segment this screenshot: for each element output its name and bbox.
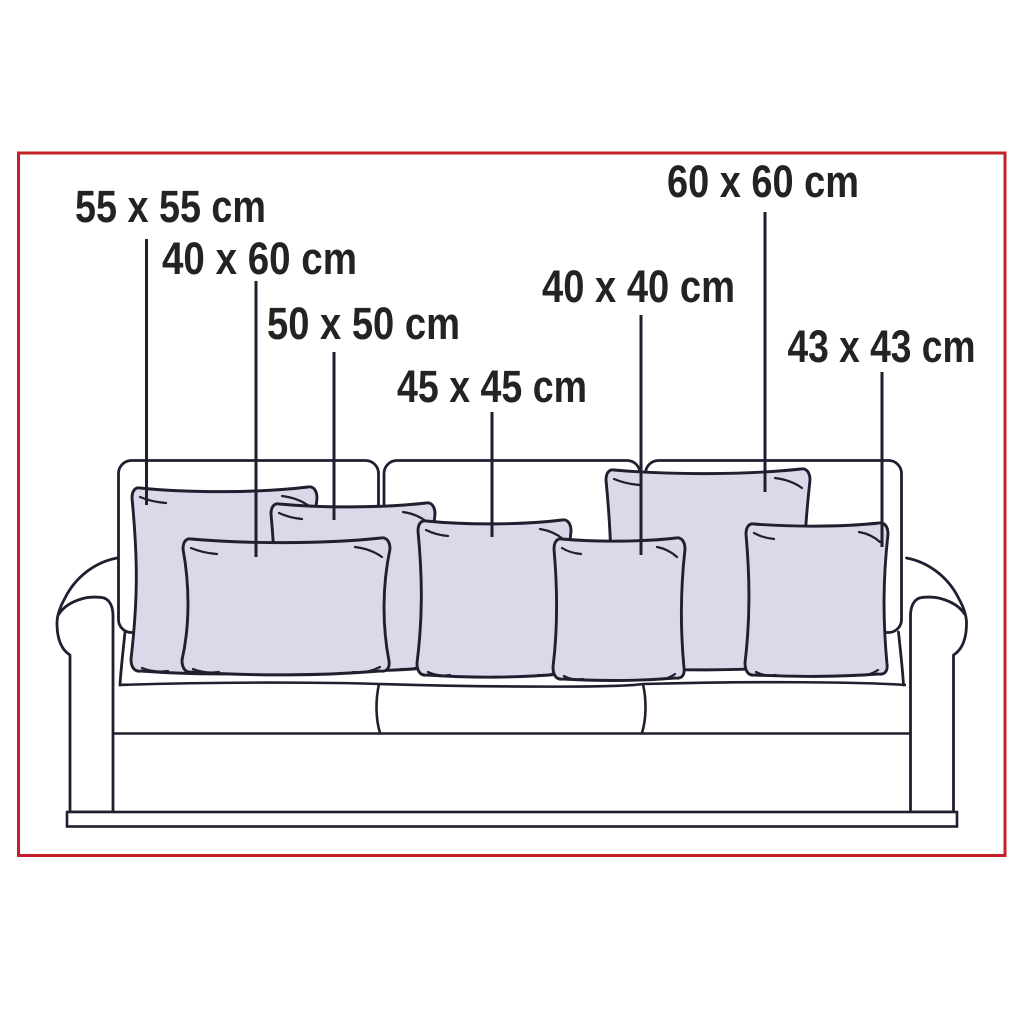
svg-text:40 x 60 cm: 40 x 60 cm: [162, 233, 357, 284]
svg-text:60 x 60 cm: 60 x 60 cm: [667, 156, 859, 207]
svg-text:50 x 50 cm: 50 x 50 cm: [267, 298, 460, 349]
svg-text:43 x 43 cm: 43 x 43 cm: [788, 321, 976, 372]
svg-text:45 x 45 cm: 45 x 45 cm: [397, 361, 587, 412]
svg-text:55 x 55 cm: 55 x 55 cm: [75, 181, 266, 232]
svg-text:40 x 40 cm: 40 x 40 cm: [542, 261, 735, 312]
